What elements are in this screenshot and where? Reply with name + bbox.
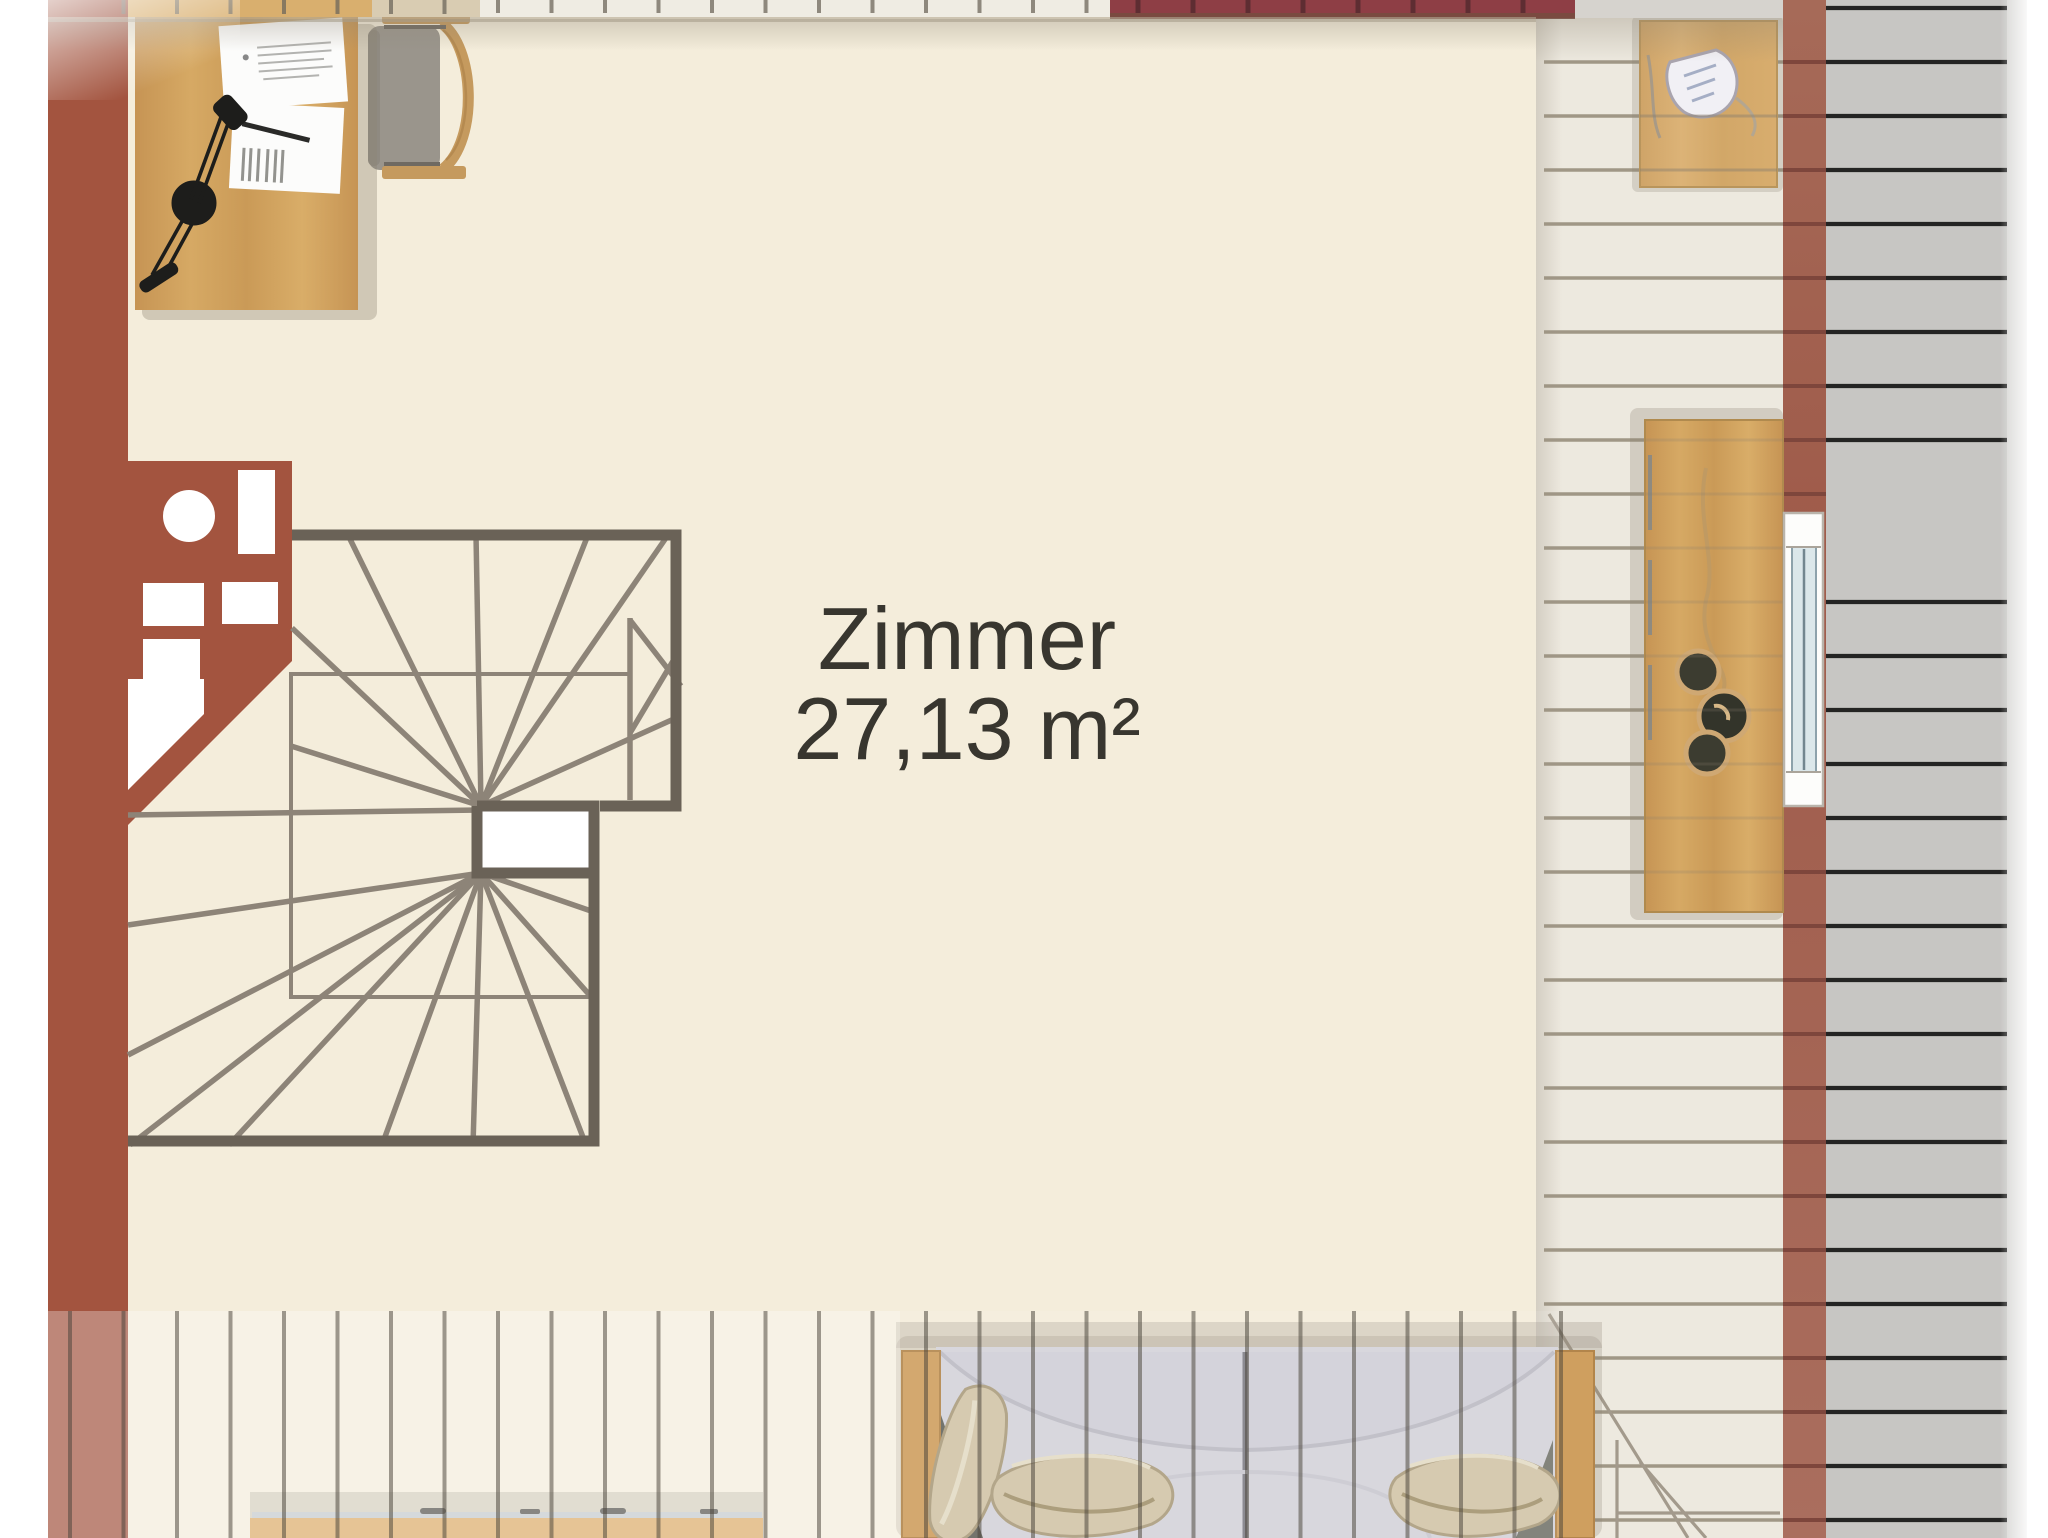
svg-text:27,13 m²: 27,13 m² — [793, 679, 1140, 778]
svg-text:Zimmer: Zimmer — [818, 589, 1116, 688]
